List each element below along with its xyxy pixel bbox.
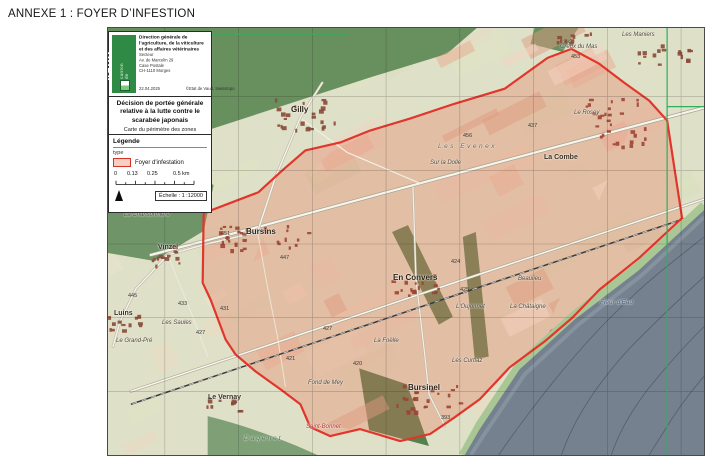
org-name: Direction générale de l’agriculture, de … xyxy=(139,35,234,53)
scale-tick-labels: 00.130.250.5 km xyxy=(113,171,207,178)
scale-ratio-box: Échelle : 1 :12000 xyxy=(155,191,207,201)
annexe-page: { "page": { "title": "ANNEXE 1 : FOYER D… xyxy=(0,0,713,462)
vaud-logo: vaud canton de xyxy=(112,35,136,93)
map-title: Décision de portée générale relative à l… xyxy=(111,100,209,125)
date-credit-row: 22.04.2025 ©Etat de Vaud, Swisstopo xyxy=(139,87,234,91)
north-arrow-icon xyxy=(115,190,123,201)
map-credit: ©Etat de Vaud, Swisstopo xyxy=(186,87,235,91)
vaud-logo-text: vaud xyxy=(107,51,115,81)
scale-tick-label: 0 xyxy=(114,171,117,177)
scale-bar xyxy=(113,179,197,187)
zone-swatch-icon xyxy=(113,158,131,167)
legend-group-label: type xyxy=(113,150,207,156)
scale-tick-label: 0.5 km xyxy=(173,171,190,177)
vaud-logo-smalltext: canton de xyxy=(119,63,129,79)
map-panels: vaud canton de Direction générale de l’a… xyxy=(108,31,212,213)
header-text: Direction générale de l’agriculture, de … xyxy=(136,35,234,93)
legend-item-label: Foyer d'infestation xyxy=(135,160,184,166)
map: GillyBursinsEn ConversBursinelVinzelLuin… xyxy=(107,27,705,456)
org-address: Secteur Av. de Marcelin 29 Case Postale … xyxy=(139,53,234,75)
header-box: vaud canton de Direction générale de l’a… xyxy=(108,31,212,97)
vaud-crest-icon xyxy=(120,80,130,91)
legend-item: Foyer d'infestation xyxy=(113,158,207,167)
scale-tick-label: 0.25 xyxy=(147,171,158,177)
page-title: ANNEXE 1 : FOYER D’INFESTION xyxy=(8,8,195,20)
map-subtitle: Carte du périmètre des zones xyxy=(111,127,209,133)
scale-tick-label: 0.13 xyxy=(127,171,138,177)
legend-box: Légende type Foyer d'infestation 00.130.… xyxy=(108,134,212,213)
scale-area: 00.130.250.5 km Échelle : 1 :12000 xyxy=(113,171,207,205)
title-box: Décision de portée générale relative à l… xyxy=(108,96,212,135)
legend-heading: Légende xyxy=(113,138,207,148)
map-date: 22.04.2025 xyxy=(139,87,160,91)
